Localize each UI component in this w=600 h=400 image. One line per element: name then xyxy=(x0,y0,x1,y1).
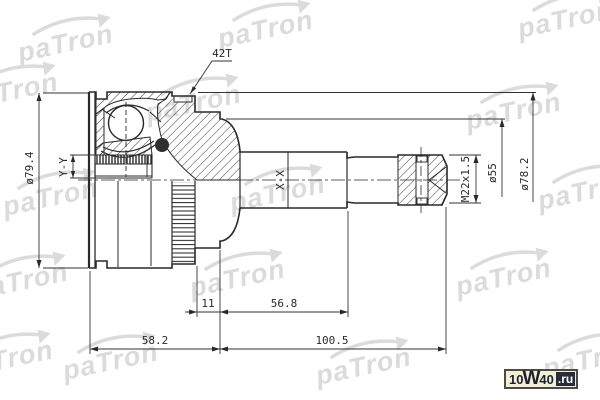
svg-text:paTron: paTron xyxy=(452,252,554,302)
patron-watermark: paTron xyxy=(0,249,72,306)
cv-joint-technical-drawing: paTron paTron paTron paTron paTron paTro… xyxy=(0,0,600,400)
technical-drawing-page: paTron paTron paTron paTron paTron paTro… xyxy=(0,0,600,400)
section-y-y-label: Y-Y xyxy=(57,157,70,177)
abs-ring-teeth xyxy=(173,182,195,263)
thread-label: M22x1.5 xyxy=(459,156,472,202)
dim-58-2-label: 58.2 xyxy=(142,334,169,347)
patron-watermark: paTron xyxy=(0,327,57,384)
section-x-x-label: X-X xyxy=(274,170,287,190)
patron-watermark: paTron xyxy=(213,0,318,54)
dia-78-2-label: ø78.2 xyxy=(518,157,531,190)
patron-watermark: paTron xyxy=(0,165,102,222)
dim-56-8-label: 56.8 xyxy=(271,297,298,310)
svg-text:paTron: paTron xyxy=(186,253,288,303)
watermark-text: paTron xyxy=(14,18,116,68)
logo-text-10: 10 xyxy=(509,372,523,387)
10w40-logo: 10 W 40 .ru xyxy=(504,369,578,389)
logo-domain-badge: .ru xyxy=(556,372,575,386)
svg-text:paTron: paTron xyxy=(0,334,56,384)
dim-100-5-label: 100.5 xyxy=(315,334,348,347)
svg-text:paTron: paTron xyxy=(514,0,600,44)
patron-watermark: paTron xyxy=(185,246,290,303)
patron-watermark: paTron xyxy=(533,159,600,216)
patron-watermark: paTron xyxy=(513,0,600,44)
ball-track-shadow xyxy=(155,138,169,152)
patron-watermark: paTron xyxy=(13,11,118,68)
logo-text-40: 40 xyxy=(539,372,553,387)
dia-55-label: ø55 xyxy=(486,163,499,183)
patron-watermark: paTron xyxy=(451,245,556,302)
patron-watermark: paTron xyxy=(461,79,566,136)
logo-text-w: W xyxy=(522,371,540,387)
svg-text:paTron: paTron xyxy=(0,256,71,306)
teeth-count-label: 42T xyxy=(212,47,232,60)
patron-watermark: paTron xyxy=(0,59,62,116)
svg-text:paTron: paTron xyxy=(462,86,564,136)
dim-11-label: 11 xyxy=(201,297,214,310)
dia-79-4-label: ø79.4 xyxy=(23,151,36,184)
svg-text:paTron: paTron xyxy=(0,66,61,116)
spline-bore xyxy=(95,155,152,178)
